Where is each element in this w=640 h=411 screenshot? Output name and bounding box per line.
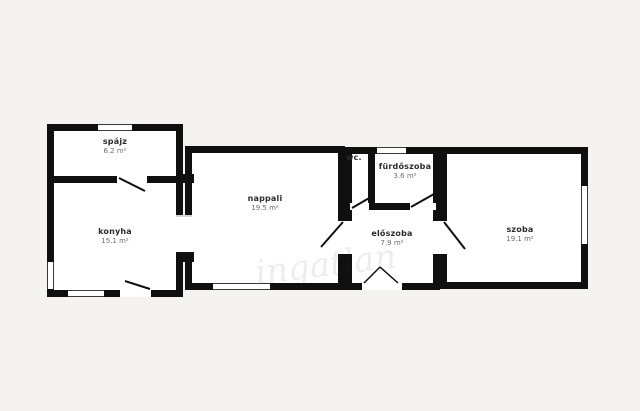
floorplan-canvas: ingatlan spájz 6.2 m² konyha 15.1 m² nap… <box>0 0 640 411</box>
door-swing-lines <box>0 0 640 411</box>
door-swing-spajz <box>119 178 145 191</box>
door-swing-szoba <box>444 222 465 249</box>
entrance-door-leaf-left <box>364 267 380 283</box>
door-swing-furdoszoba <box>411 194 434 207</box>
entrance-door-leaf-right <box>380 267 398 283</box>
door-swing-wc <box>352 197 371 208</box>
door-swing-konyha <box>125 281 150 289</box>
door-swing-nappali <box>321 222 343 247</box>
